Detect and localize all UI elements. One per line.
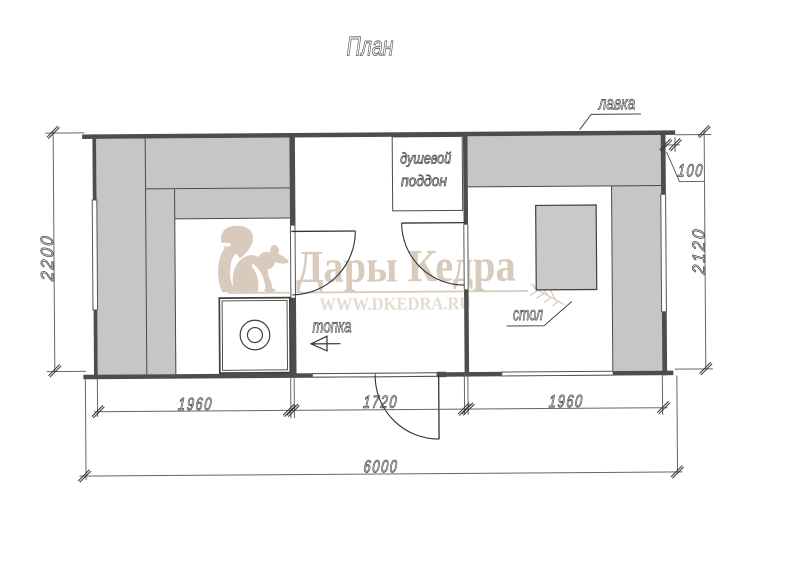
svg-text:6000: 6000 [363, 457, 399, 477]
svg-text:WWW.DKEDRA.RU: WWW.DKEDRA.RU [319, 293, 471, 314]
svg-text:2120: 2120 [689, 226, 709, 276]
svg-text:Дары Кедра: Дары Кедра [296, 240, 516, 293]
svg-text:1960: 1960 [177, 395, 213, 415]
svg-text:1720: 1720 [363, 393, 399, 413]
svg-text:душевой: душевой [400, 150, 451, 167]
svg-text:поддон: поддон [401, 173, 448, 190]
svg-text:2200: 2200 [37, 233, 57, 283]
svg-text:лавка: лавка [598, 92, 635, 113]
svg-text:1960: 1960 [548, 392, 584, 412]
svg-text:100: 100 [677, 161, 704, 181]
svg-text:топка: топка [312, 315, 351, 336]
svg-text:стол: стол [513, 303, 544, 324]
svg-text:План: План [346, 31, 393, 61]
